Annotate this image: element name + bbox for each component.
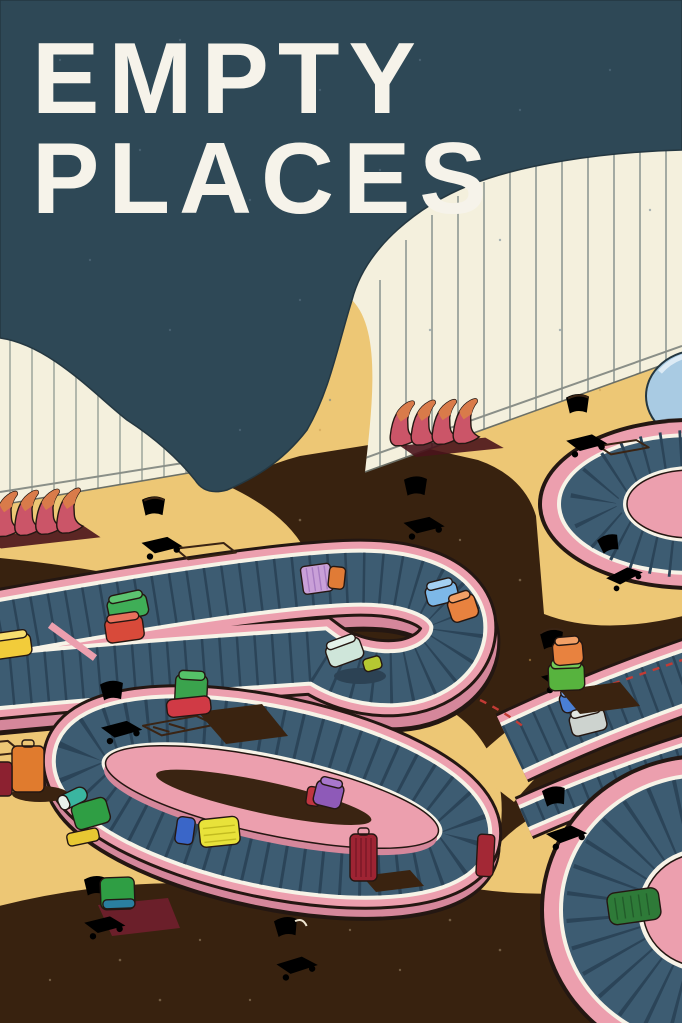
title-line-2: PLACES xyxy=(32,123,496,235)
illustration: EMPTY PLACES xyxy=(0,0,682,1023)
title-line-1: EMPTY xyxy=(32,23,425,135)
poster: EMPTY PLACES xyxy=(0,0,682,1023)
